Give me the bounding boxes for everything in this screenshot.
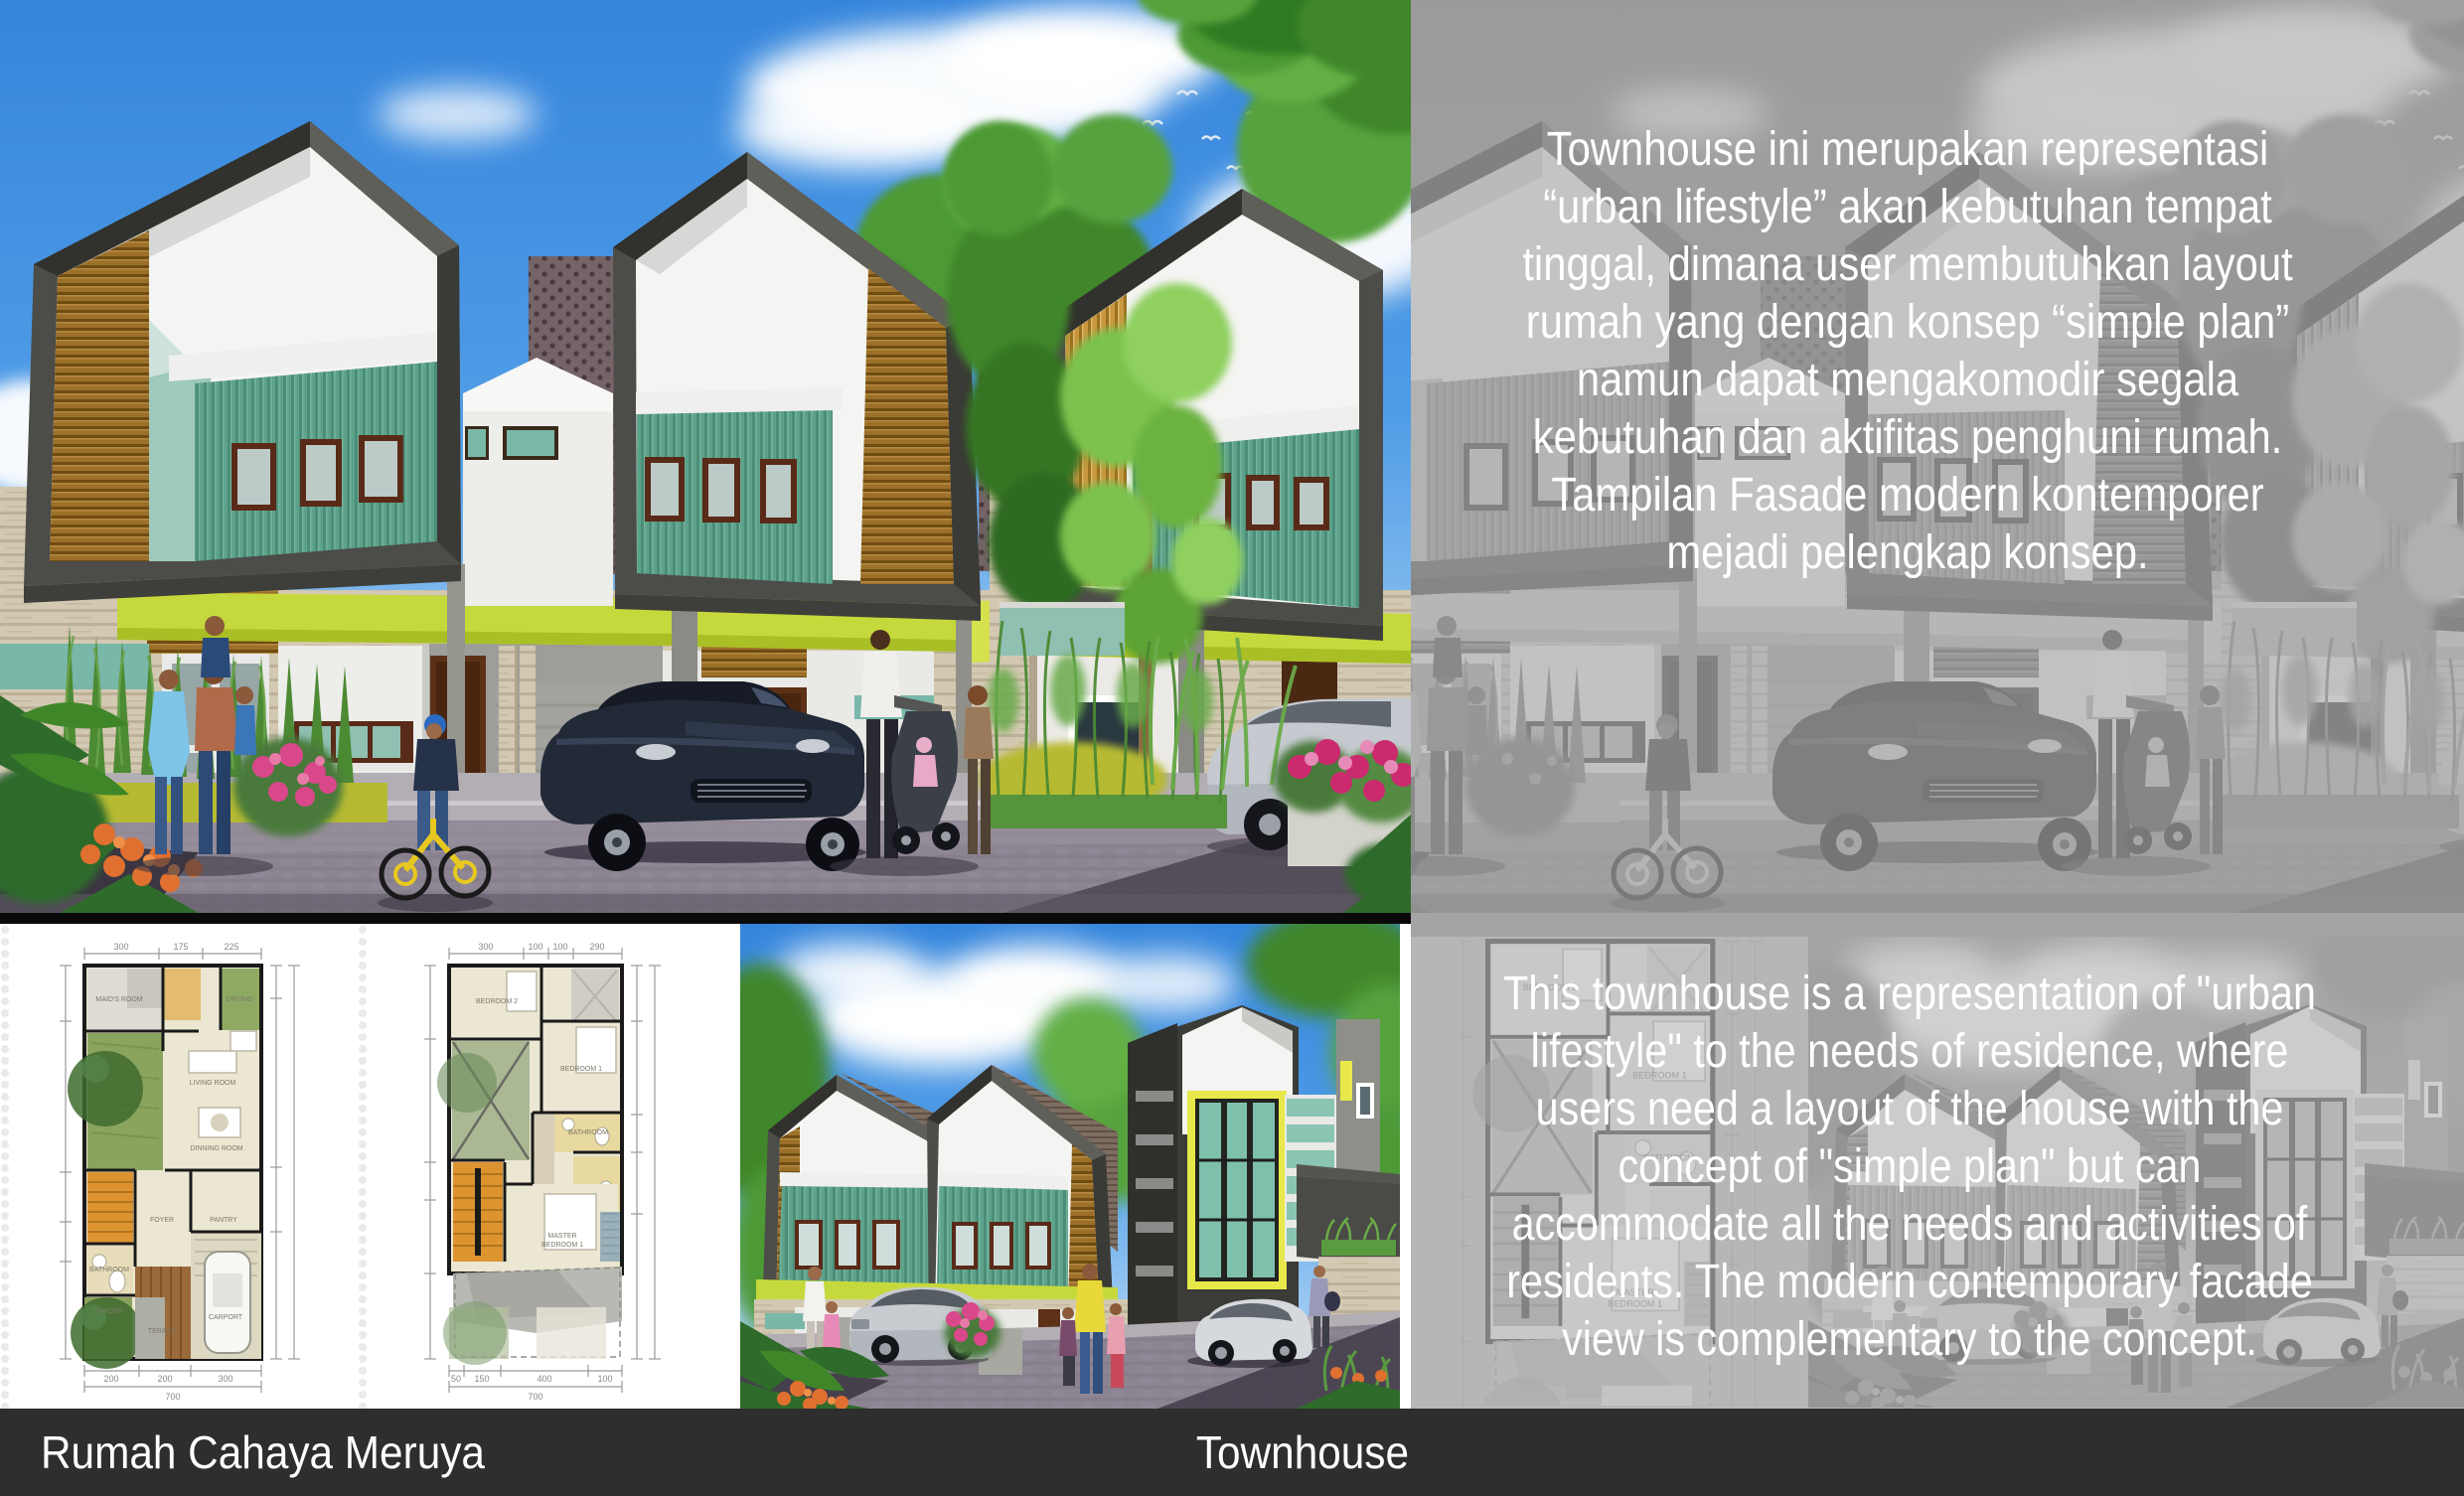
svg-text:100: 100 (552, 942, 567, 952)
svg-text:BATHROOM: BATHROOM (89, 1267, 129, 1273)
svg-text:300: 300 (113, 942, 128, 952)
svg-text:300: 300 (478, 942, 493, 952)
svg-text:150: 150 (474, 1374, 489, 1384)
svg-text:DRYING: DRYING (226, 996, 252, 1003)
svg-text:FOYER: FOYER (150, 1217, 174, 1224)
svg-text:BEDROOM 1: BEDROOM 1 (541, 1242, 583, 1249)
svg-text:GARDEN: GARDEN (93, 1308, 123, 1315)
svg-text:225: 225 (224, 942, 238, 952)
svg-text:PANTRY: PANTRY (210, 1217, 237, 1224)
svg-text:700: 700 (528, 1392, 542, 1402)
svg-text:300: 300 (218, 1374, 232, 1384)
svg-text:DINNING ROOM: DINNING ROOM (190, 1145, 242, 1152)
svg-text:400: 400 (537, 1374, 551, 1384)
svg-text:TERACE: TERACE (148, 1328, 177, 1335)
svg-text:200: 200 (103, 1374, 118, 1384)
svg-text:MASTER: MASTER (547, 1233, 576, 1240)
svg-text:175: 175 (173, 942, 188, 952)
svg-text:700: 700 (165, 1392, 180, 1402)
svg-text:100: 100 (528, 942, 542, 952)
svg-text:100: 100 (597, 1374, 612, 1384)
svg-text:50: 50 (451, 1374, 461, 1384)
svg-text:LIVING ROOM: LIVING ROOM (190, 1080, 236, 1087)
svg-text:MAID'S ROOM: MAID'S ROOM (95, 996, 142, 1003)
svg-text:BEDROOM 2: BEDROOM 2 (476, 998, 518, 1005)
svg-text:200: 200 (157, 1374, 172, 1384)
svg-text:BEDROOM 1: BEDROOM 1 (560, 1066, 602, 1073)
svg-text:290: 290 (589, 942, 604, 952)
svg-text:BATHROOM: BATHROOM (568, 1129, 608, 1136)
svg-text:CARPORT: CARPORT (209, 1314, 243, 1321)
